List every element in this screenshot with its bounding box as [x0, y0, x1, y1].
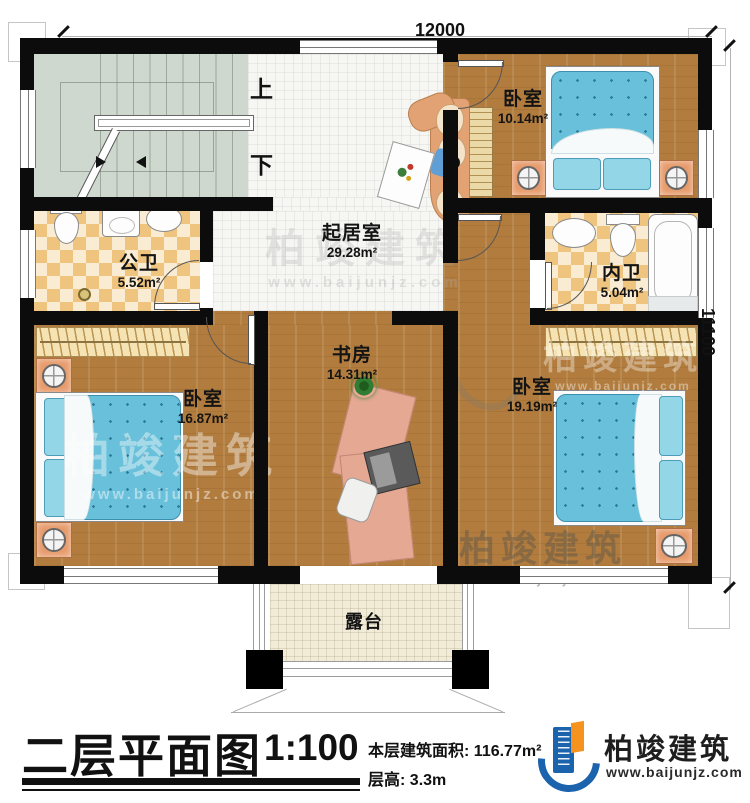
brand-logo-icon	[538, 722, 596, 784]
room-label-living: 起居室 29.28m²	[322, 218, 382, 260]
monitor-screen	[370, 452, 397, 488]
lamp-icon	[661, 534, 687, 559]
wall-living-bedroomtop	[443, 110, 458, 198]
floor-area-label: 本层建筑面积:	[368, 743, 469, 760]
dimension-height: 11100	[697, 308, 718, 356]
room-label-bedroom-left: 卧室 16.87m²	[178, 384, 228, 426]
title-underline-thick	[22, 778, 360, 785]
window-bottom-bedroom-right	[520, 568, 668, 584]
wardrobe-bedroom-left	[36, 327, 190, 357]
nightstand	[511, 160, 546, 196]
wall-bath-inner-bottom	[530, 311, 698, 325]
wardrobe-bedroom-right	[545, 327, 697, 357]
terrace-step-line	[449, 689, 503, 713]
room-label-bath-public: 公卫 5.52m²	[118, 248, 161, 290]
scale-value: 1:100	[264, 727, 359, 769]
wall-bedroomtop-bottom	[443, 198, 712, 213]
window-left-stairs	[20, 90, 36, 168]
floor-height-row: 层高: 3.3m	[368, 766, 446, 790]
bed-sheet-fold	[634, 394, 662, 522]
floor-plan-canvas: 12000 11100	[0, 0, 750, 803]
room-label-study: 书房 14.31m²	[327, 340, 377, 382]
logo-tower-orange	[571, 721, 584, 753]
doorway-floor	[443, 263, 458, 311]
bed-pillow	[553, 158, 601, 190]
wardrobe-rod	[40, 341, 186, 343]
floor-height-value: 3.3m	[410, 772, 446, 789]
terrace-step-line	[231, 712, 505, 713]
bathtub-inner	[654, 221, 692, 306]
wall-bedroomleft-study	[254, 311, 268, 566]
stairs-up-label: 上	[250, 70, 273, 104]
floor-area-value: 116.77m²	[474, 743, 542, 760]
title-underline-thin	[22, 789, 360, 791]
flower	[406, 175, 412, 181]
wall-bottom	[218, 566, 300, 584]
window-top-living	[300, 40, 437, 54]
stair-arrow-left	[96, 156, 112, 168]
terrace-column-left	[246, 650, 283, 689]
wall-living-corridor	[443, 213, 458, 263]
nightstand	[659, 160, 694, 196]
wall-bottom	[20, 566, 64, 584]
wall-corridor-bath	[530, 213, 545, 260]
offset-box-bottomright	[688, 577, 730, 629]
flower	[407, 163, 414, 170]
wall-bath-public-bottom	[20, 311, 213, 325]
nightstand	[36, 522, 72, 558]
sink	[552, 218, 596, 248]
dimension-line-top	[62, 36, 712, 37]
room-label-bath-inner: 内卫 5.04m²	[601, 258, 644, 300]
brand-name: 柏竣建筑	[604, 726, 732, 768]
window-right-bedroom	[698, 130, 714, 198]
bed-pillow	[659, 396, 683, 456]
bed-pillow	[659, 460, 683, 520]
stair-rail	[94, 115, 254, 131]
window-bottom-bedroom-left	[64, 568, 218, 584]
nightstand	[655, 528, 693, 564]
stairs-down-label: 下	[250, 146, 273, 180]
wall-study-top	[392, 311, 443, 325]
brand-website: www.baijunjz.com	[606, 764, 743, 780]
wardrobe-rod	[549, 341, 693, 343]
lamp-icon	[42, 528, 67, 553]
terrace-step-line	[233, 689, 287, 713]
wall-bath-public-right	[200, 211, 213, 262]
room-label-terrace: 露台	[345, 608, 383, 634]
window-left-bath	[20, 230, 36, 298]
floor-drain	[78, 288, 91, 301]
lamp-icon	[665, 166, 689, 191]
wall-bottom	[437, 566, 520, 584]
wall-living-bedroomtop	[443, 54, 458, 62]
dimension-line-right	[730, 48, 731, 590]
terrace-column-right	[452, 650, 489, 689]
washer-drum	[109, 217, 135, 234]
bed-pillow	[603, 158, 651, 190]
bed-sheet-fold	[64, 395, 94, 520]
lamp-icon	[517, 166, 541, 191]
stair-rail-inner	[98, 119, 250, 127]
lamp-icon	[42, 364, 67, 389]
wall-bottom	[668, 566, 712, 584]
room-label-bedroom-top: 卧室 10.14m²	[498, 84, 548, 126]
wall-stairs-bottom	[20, 197, 273, 211]
stair-arrow-right	[130, 156, 146, 168]
floor-height-label: 层高:	[368, 772, 405, 789]
room-label-bedroom-right: 卧室 19.19m²	[507, 372, 557, 414]
page-title: 二层平面图	[22, 720, 262, 786]
wall-study-bedroomright	[443, 311, 458, 566]
floor-area-row: 本层建筑面积: 116.77m²	[368, 737, 541, 761]
window-right-bath	[698, 228, 714, 318]
nightstand	[36, 358, 72, 394]
dimension-width: 12000	[415, 20, 465, 41]
